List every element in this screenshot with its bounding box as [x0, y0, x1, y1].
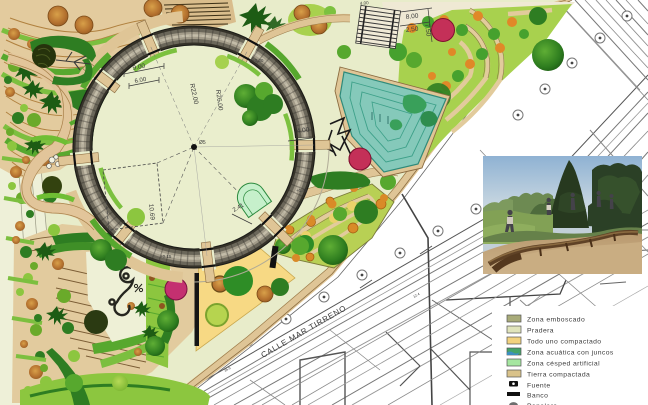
- svg-text:Pradera: Pradera: [527, 328, 554, 335]
- svg-text:+0.30: +0.30: [252, 58, 264, 63]
- svg-text:Zona césped artificial: Zona césped artificial: [527, 361, 600, 368]
- svg-text:4.00: 4.00: [360, 0, 370, 6]
- svg-text:Todo uno compactado: Todo uno compactado: [527, 339, 601, 346]
- svg-text:Zona acuática con juncos: Zona acuática con juncos: [527, 350, 614, 357]
- svg-text:2.50: 2.50: [405, 26, 419, 34]
- svg-text:Ø5: Ø5: [199, 140, 206, 146]
- svg-text:+0.15: +0.15: [160, 254, 172, 259]
- svg-text:Banco: Banco: [527, 393, 548, 400]
- svg-text:8.00: 8.00: [405, 13, 419, 21]
- svg-text:Tierra compactada: Tierra compactada: [527, 372, 590, 379]
- svg-text:Fuente: Fuente: [527, 383, 551, 390]
- svg-text:Zona emboscado: Zona emboscado: [527, 317, 585, 324]
- svg-text:+0.45: +0.45: [296, 188, 308, 193]
